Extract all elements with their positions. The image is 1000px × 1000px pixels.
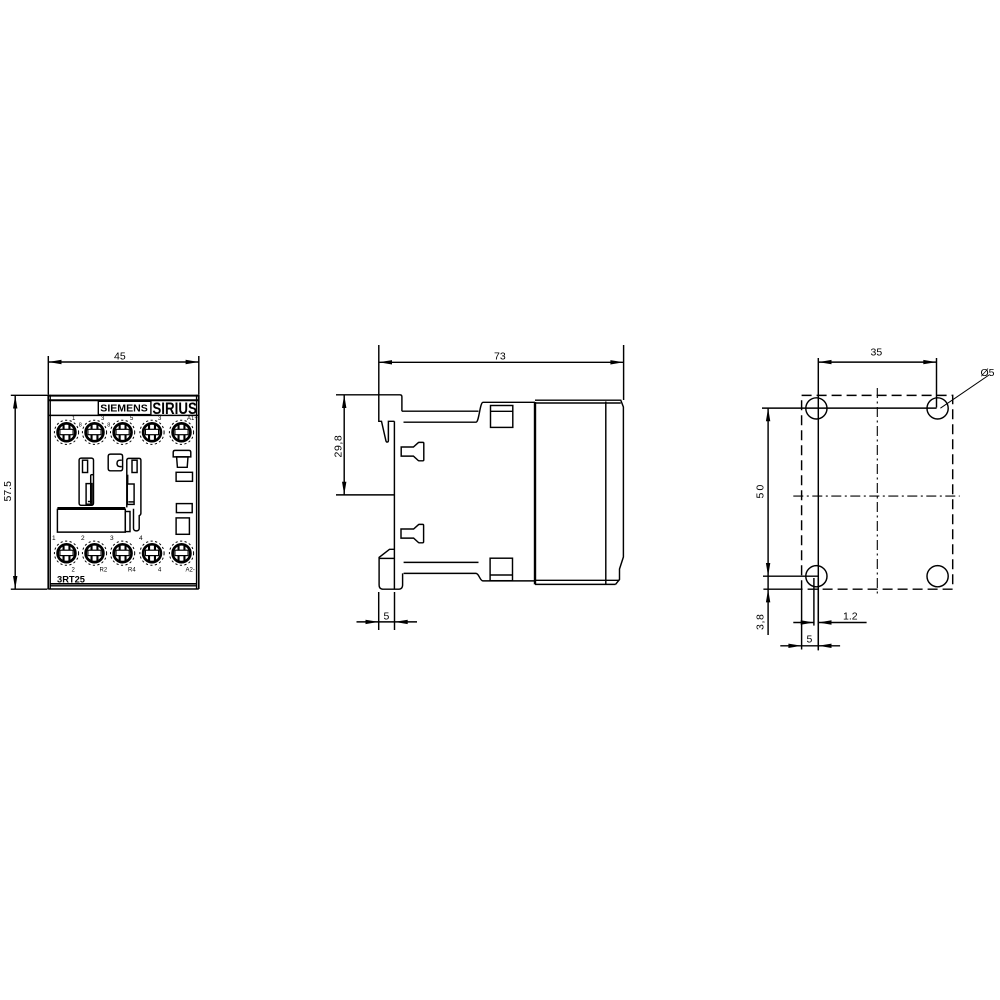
svg-text:3: 3 [110, 535, 114, 542]
svg-text:50: 50 [755, 482, 767, 498]
svg-text:29,8: 29,8 [333, 435, 345, 458]
svg-text:1.2: 1.2 [843, 611, 858, 623]
svg-text:Ø5: Ø5 [981, 367, 995, 379]
svg-text:R4: R4 [128, 568, 136, 574]
svg-text:3RT25: 3RT25 [57, 575, 86, 586]
svg-text:A2-: A2- [186, 568, 195, 574]
svg-text:5: 5 [807, 634, 813, 646]
svg-text:1: 1 [52, 535, 56, 542]
svg-text:8: 8 [79, 423, 82, 429]
svg-text:8: 8 [107, 423, 110, 429]
svg-text:SIEMENS: SIEMENS [100, 404, 148, 415]
svg-text:A1+: A1+ [187, 416, 198, 422]
svg-text:2: 2 [81, 535, 85, 542]
svg-text:R2: R2 [100, 568, 108, 574]
svg-text:57.5: 57.5 [2, 481, 14, 502]
svg-text:5: 5 [384, 611, 390, 623]
svg-text:4: 4 [139, 535, 143, 542]
svg-text:35: 35 [871, 347, 883, 359]
svg-text:73: 73 [494, 351, 506, 363]
svg-text:45: 45 [114, 351, 126, 363]
svg-text:3,8: 3,8 [755, 614, 767, 630]
